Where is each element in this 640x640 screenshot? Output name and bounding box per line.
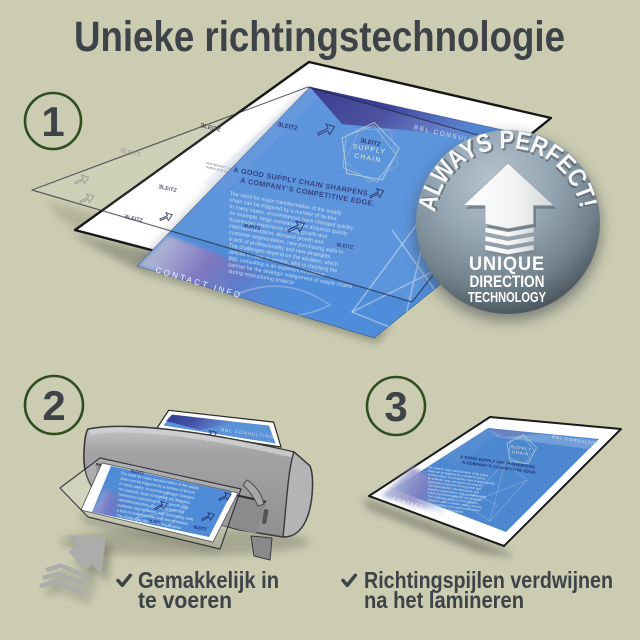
svg-text:2: 2 [42, 382, 65, 429]
svg-text:TECHNOLOGY: TECHNOLOGY [468, 290, 546, 306]
svg-text:DIRECTION: DIRECTION [470, 272, 545, 291]
svg-text:3: 3 [384, 383, 407, 430]
svg-text:na het lamineren: na het lamineren [364, 587, 524, 613]
svg-text:Unieke richtingstechnologie: Unieke richtingstechnologie [74, 13, 565, 61]
svg-text:1: 1 [41, 98, 64, 145]
svg-text:te voeren: te voeren [138, 587, 232, 613]
